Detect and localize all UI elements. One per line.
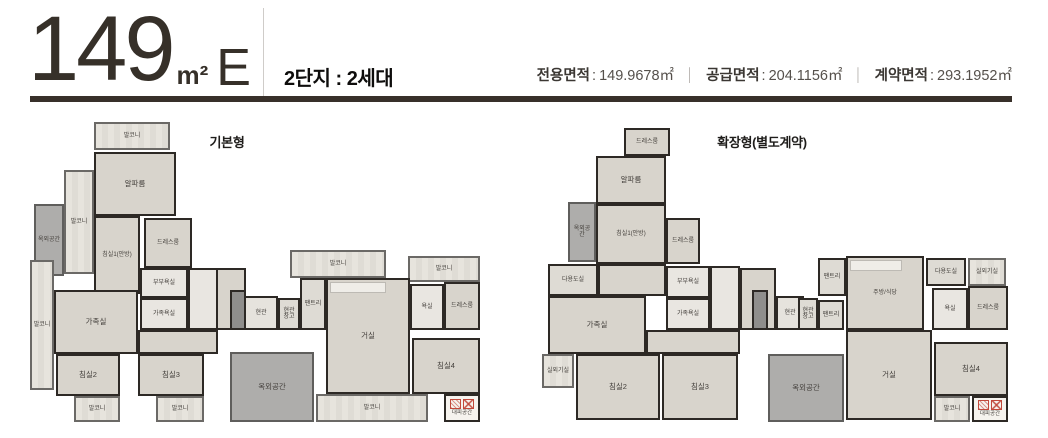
room-label: 대피공간: [451, 410, 473, 418]
room-label: 옥외공간: [570, 204, 594, 260]
size-type-letter: E: [216, 45, 251, 92]
complex-units-info: 2단지 : 2세대: [284, 62, 393, 91]
room-label: 실외기실: [970, 260, 1004, 284]
room-label: 발코니: [292, 252, 384, 276]
floor-plan-extended: 확장형(별도계약)드레스룸알파룸옥외공간침실1(안방)드레스룸다용도실부부욕실가…: [540, 118, 1012, 430]
room-label: 가족실: [56, 292, 136, 352]
room: 주방/식당: [846, 256, 924, 330]
room-label: 옥외공간: [770, 356, 842, 420]
room-label: 실외기실: [544, 356, 572, 386]
room-label: 알파룸: [598, 158, 664, 202]
area-info-item: 전용면적:149.9678㎡: [537, 64, 674, 85]
room: 침실1(안방): [596, 204, 666, 264]
room-label: 다용도실: [928, 260, 964, 284]
room: 침실1(안방): [94, 216, 140, 294]
room-label: 침실3: [664, 356, 736, 418]
room-label: 드레스룸: [446, 284, 478, 328]
room: 발코니: [30, 260, 54, 390]
room-area: [646, 330, 740, 354]
room-label: 침실3: [140, 356, 202, 394]
room: 발코니: [934, 396, 970, 422]
floor-plan-basic: 기본형발코니알파룸발코니옥외공간침실1(안방)드레스룸부부욕실가족욕실가족실발코…: [30, 118, 490, 430]
room-label: 현관창고: [800, 300, 816, 328]
floor-plan-page: 149 m² E 2단지 : 2세대 전용면적:149.9678㎡ │ 공급면적…: [0, 0, 1048, 438]
room: 발코니: [156, 396, 204, 422]
size-unit: m²: [177, 62, 209, 88]
room: 알파룸: [596, 156, 666, 204]
room-label: 부부욕실: [668, 268, 708, 296]
room: 침실2: [56, 354, 120, 396]
room: 드레스룸: [968, 286, 1008, 330]
evacuation-hatch-icon: [450, 399, 474, 409]
room-area: [598, 264, 666, 296]
plan-title: 확장형(별도계약): [682, 132, 842, 151]
room-label: 드레스룸: [146, 220, 190, 266]
plan-title: 기본형: [177, 132, 277, 151]
room-area: [710, 266, 740, 330]
room-label: 발코니: [318, 396, 426, 420]
room-label: 현관: [246, 298, 276, 328]
area-separator: │: [854, 67, 862, 82]
room: 알파룸: [94, 152, 176, 216]
room-label: 거실: [328, 280, 408, 392]
room-area: [138, 330, 218, 354]
area-info-item: 공급면적:204.1156㎡: [706, 64, 842, 85]
room: 드레스룸: [444, 282, 480, 330]
room: 대피공간: [444, 394, 480, 422]
header-divider: [263, 8, 264, 96]
page-title: 149 m² E: [28, 2, 251, 92]
area-info: 전용면적:149.9678㎡ │ 공급면적:204.1156㎡ │ 계약면적:2…: [537, 64, 1012, 85]
room-label: 침실2: [578, 356, 658, 418]
room: 드레스룸: [144, 218, 192, 268]
room: 가족실: [54, 290, 138, 354]
room-label: 부부욕실: [142, 270, 186, 296]
header-rule: [30, 96, 1012, 102]
room-label: 가족욕실: [668, 300, 708, 328]
room-label: 드레스룸: [970, 288, 1006, 328]
area-info-item: 계약면적:293.1952㎡: [875, 64, 1012, 85]
room-label: 드레스룸: [626, 130, 668, 154]
room: 발코니: [316, 394, 428, 422]
room-label: 알파룸: [96, 154, 174, 214]
area-label: 공급면적: [706, 68, 759, 84]
room: 실외기실: [968, 258, 1006, 286]
room-label: 침실1(안방): [598, 206, 664, 262]
room-label: 침실4: [414, 340, 478, 392]
room: 발코니: [64, 170, 94, 274]
room: 부부욕실: [666, 266, 710, 298]
area-value: 293.1952㎡: [937, 68, 1012, 84]
area-value: 204.1156㎡: [769, 68, 843, 84]
room-label: 침실2: [58, 356, 118, 394]
room: 가족욕실: [666, 298, 710, 330]
room-label: 발코니: [76, 398, 118, 420]
room: 발코니: [290, 250, 386, 278]
room-label: 옥외공간: [232, 354, 312, 420]
room-label: 팬트리: [302, 280, 324, 328]
room: 드레스룸: [666, 218, 700, 264]
room-label: 대피공간: [979, 411, 1001, 419]
room: 드레스룸: [624, 128, 670, 156]
room: 발코니: [408, 256, 480, 282]
evacuation-hatch-icon: [978, 400, 1002, 410]
room-label: 발코니: [158, 398, 202, 420]
room: 다용도실: [548, 264, 598, 296]
room: 침실3: [138, 354, 204, 396]
room: 옥외공간: [568, 202, 596, 262]
room: 발코니: [74, 396, 120, 422]
room-label: 팬트리: [820, 302, 842, 328]
room: 팬트리: [818, 258, 846, 296]
room: 팬트리: [300, 278, 326, 330]
room-label: 현관창고: [280, 300, 298, 328]
size-number: 149: [28, 6, 173, 92]
room: 현관창고: [278, 298, 300, 330]
room: 옥외공간: [768, 354, 844, 422]
room: 거실: [326, 278, 410, 394]
room: 욕실: [932, 288, 968, 330]
room: 침실4: [934, 342, 1008, 396]
room: 옥외공간: [230, 352, 314, 422]
room: 침실4: [412, 338, 480, 394]
room: 부부욕실: [140, 268, 188, 298]
room: 다용도실: [926, 258, 966, 286]
area-label: 전용면적: [537, 68, 590, 84]
kitchen-counter: [850, 260, 902, 271]
room-label: 욕실: [934, 290, 966, 328]
area-label: 계약면적: [875, 68, 928, 84]
area-value: 149.9678㎡: [599, 68, 674, 84]
area-separator: │: [686, 67, 694, 82]
room-label: 침실4: [936, 344, 1006, 394]
room-label: 거실: [848, 332, 930, 418]
room-label: 팬트리: [820, 260, 844, 294]
room: 거실: [846, 330, 932, 420]
room: 발코니: [94, 122, 170, 150]
room-label: 침실1(안방): [96, 218, 138, 292]
room-label: 발코니: [936, 398, 968, 420]
room: 실외기실: [542, 354, 574, 388]
room-label: 다용도실: [550, 266, 596, 294]
room-label: 발코니: [96, 124, 168, 148]
room: 대피공간: [972, 396, 1008, 422]
room-area: [752, 290, 768, 330]
room: 가족욕실: [140, 298, 188, 330]
kitchen-counter: [330, 282, 386, 293]
room: 가족실: [548, 296, 646, 354]
room: 욕실: [410, 284, 444, 330]
room-label: 발코니: [410, 258, 478, 280]
room-area: [188, 268, 218, 330]
room: 침실2: [576, 354, 660, 420]
room-label: 가족욕실: [142, 300, 186, 328]
room: 침실3: [662, 354, 738, 420]
room: 팬트리: [818, 300, 844, 330]
room-label: 발코니: [32, 262, 52, 388]
room: 현관창고: [798, 298, 818, 330]
room-label: 가족실: [550, 298, 644, 352]
room-label: 드레스룸: [668, 220, 698, 262]
room-label: 발코니: [66, 172, 92, 272]
room: 현관: [244, 296, 278, 330]
room-label: 욕실: [412, 286, 442, 328]
